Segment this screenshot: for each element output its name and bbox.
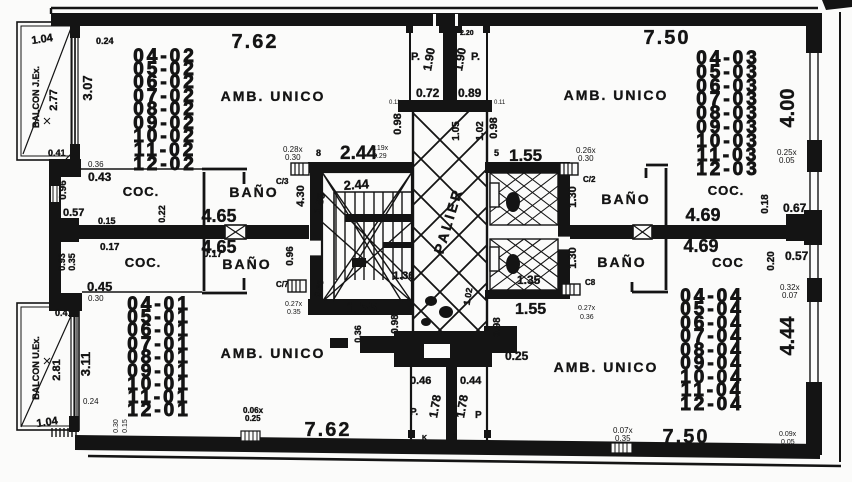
svg-text:12-04: 12-04 [680,394,744,415]
svg-text:0.93: 0.93 [57,253,67,271]
svg-text:0.19x: 0.19x [371,145,389,152]
svg-text:0.18: 0.18 [760,194,771,214]
svg-text:AMB. UNICO: AMB. UNICO [221,345,326,361]
svg-text:0.35: 0.35 [287,309,301,316]
svg-text:0.30: 0.30 [578,154,594,163]
svg-text:0.11: 0.11 [389,100,401,106]
svg-text:12-03: 12-03 [696,159,760,180]
svg-text:1.55: 1.55 [346,300,377,317]
svg-text:0.30: 0.30 [88,294,104,303]
svg-text:0.20: 0.20 [766,251,777,271]
svg-text:COC.: COC. [125,255,162,270]
svg-text:4.69: 4.69 [683,236,718,256]
svg-text:1.55: 1.55 [509,146,542,165]
svg-text:0.09x: 0.09x [779,431,797,438]
svg-text:0.24: 0.24 [96,36,114,46]
svg-text:C/2: C/2 [583,175,596,184]
svg-text:12-02: 12-02 [133,154,197,175]
svg-text:0.30: 0.30 [113,419,120,433]
svg-text:0.57: 0.57 [63,207,84,219]
svg-text:0.35: 0.35 [67,253,77,271]
svg-text:0.30: 0.30 [285,153,301,162]
svg-text:0.45: 0.45 [87,279,112,294]
svg-text:0.89: 0.89 [458,86,482,100]
svg-text:0.24: 0.24 [83,397,99,406]
svg-text:0.41: 0.41 [48,148,66,158]
svg-text:0.36: 0.36 [88,160,104,169]
svg-text:C/3: C/3 [276,177,289,186]
svg-text:4.44: 4.44 [777,316,799,356]
svg-text:0.72: 0.72 [416,86,440,100]
svg-text:COC: COC [712,255,744,270]
svg-text:P: P [475,410,482,421]
svg-text:0.96: 0.96 [58,180,69,200]
svg-text:4.30: 4.30 [295,185,307,206]
svg-text:COC.: COC. [708,183,745,198]
svg-text:BALCON U.Ex.: BALCON U.Ex. [31,336,41,400]
svg-text:0.43: 0.43 [88,170,112,184]
svg-text:0.44: 0.44 [460,375,482,387]
svg-text:0.07: 0.07 [782,291,798,300]
svg-text:0.96: 0.96 [285,246,296,266]
svg-text:1.30: 1.30 [567,247,579,268]
svg-text:0.05: 0.05 [779,156,795,165]
svg-text:0.36: 0.36 [580,314,594,321]
svg-text:0.27x: 0.27x [285,301,303,308]
svg-text:3.07: 3.07 [80,75,95,100]
svg-text:AMB. UNICO: AMB. UNICO [564,87,669,103]
svg-text:7.62: 7.62 [305,419,352,441]
svg-text:2.81: 2.81 [51,359,63,380]
svg-text:6: 6 [453,433,457,440]
svg-text:BAÑO: BAÑO [222,255,271,272]
svg-text:AMB. UNICO: AMB. UNICO [221,88,326,104]
svg-text:C8: C8 [585,278,596,287]
svg-text:0.98: 0.98 [390,314,401,334]
svg-text:1.36: 1.36 [393,270,414,282]
svg-text:0.15: 0.15 [98,216,116,226]
svg-text:0.46: 0.46 [410,375,431,387]
svg-text:0.98: 0.98 [488,117,500,138]
svg-text:0.57: 0.57 [785,249,809,263]
svg-text:BAÑO: BAÑO [229,183,278,200]
svg-text:0.25: 0.25 [245,414,261,423]
svg-text:BAÑO: BAÑO [601,190,650,207]
svg-text:0.15: 0.15 [122,419,129,433]
svg-text:0.25: 0.25 [505,349,529,363]
svg-text:3.11: 3.11 [78,352,93,377]
svg-text:2.44: 2.44 [343,176,370,193]
svg-text:7.50: 7.50 [663,426,710,448]
svg-text:4.69: 4.69 [685,205,720,225]
svg-text:7.62: 7.62 [232,31,279,53]
svg-text:0.27x: 0.27x [578,305,596,312]
svg-text:4.65: 4.65 [201,206,236,226]
svg-text:BAÑO: BAÑO [597,253,646,270]
svg-text:4.00: 4.00 [777,89,799,128]
svg-text:1.55: 1.55 [515,301,546,318]
svg-text:0.98: 0.98 [492,317,503,337]
svg-text:1.35: 1.35 [517,273,541,287]
svg-text:0.98: 0.98 [392,113,404,134]
svg-text:K: K [422,435,427,442]
svg-text:BALCON J.Ex.: BALCON J.Ex. [31,66,41,128]
svg-text:0.11: 0.11 [494,100,506,106]
svg-text:P.: P. [471,51,480,63]
svg-text:0.67: 0.67 [783,201,807,215]
svg-text:2.20: 2.20 [460,30,474,37]
svg-text:0.35: 0.35 [615,434,631,443]
svg-text:0.22: 0.22 [157,205,167,223]
svg-text:1.02: 1.02 [475,121,486,141]
svg-text:0.36: 0.36 [353,325,363,343]
svg-text:8: 8 [316,148,321,158]
svg-text:0.17: 0.17 [203,249,223,260]
svg-text:7.50: 7.50 [644,27,691,49]
svg-text:COC.: COC. [123,184,160,199]
svg-text:AMB. UNICO: AMB. UNICO [554,359,659,375]
svg-text:5: 5 [494,148,499,158]
svg-text:1.05: 1.05 [451,121,462,141]
svg-text:1.30: 1.30 [567,186,579,207]
svg-text:C/7: C/7 [276,280,289,289]
svg-text:2.77: 2.77 [48,89,60,110]
svg-text:0.29: 0.29 [373,153,387,160]
svg-text:12-01: 12-01 [127,400,191,421]
svg-text:P.: P. [410,407,418,418]
svg-text:0.05: 0.05 [781,439,795,446]
svg-text:0.17: 0.17 [100,242,120,253]
svg-text:P.: P. [411,51,420,63]
